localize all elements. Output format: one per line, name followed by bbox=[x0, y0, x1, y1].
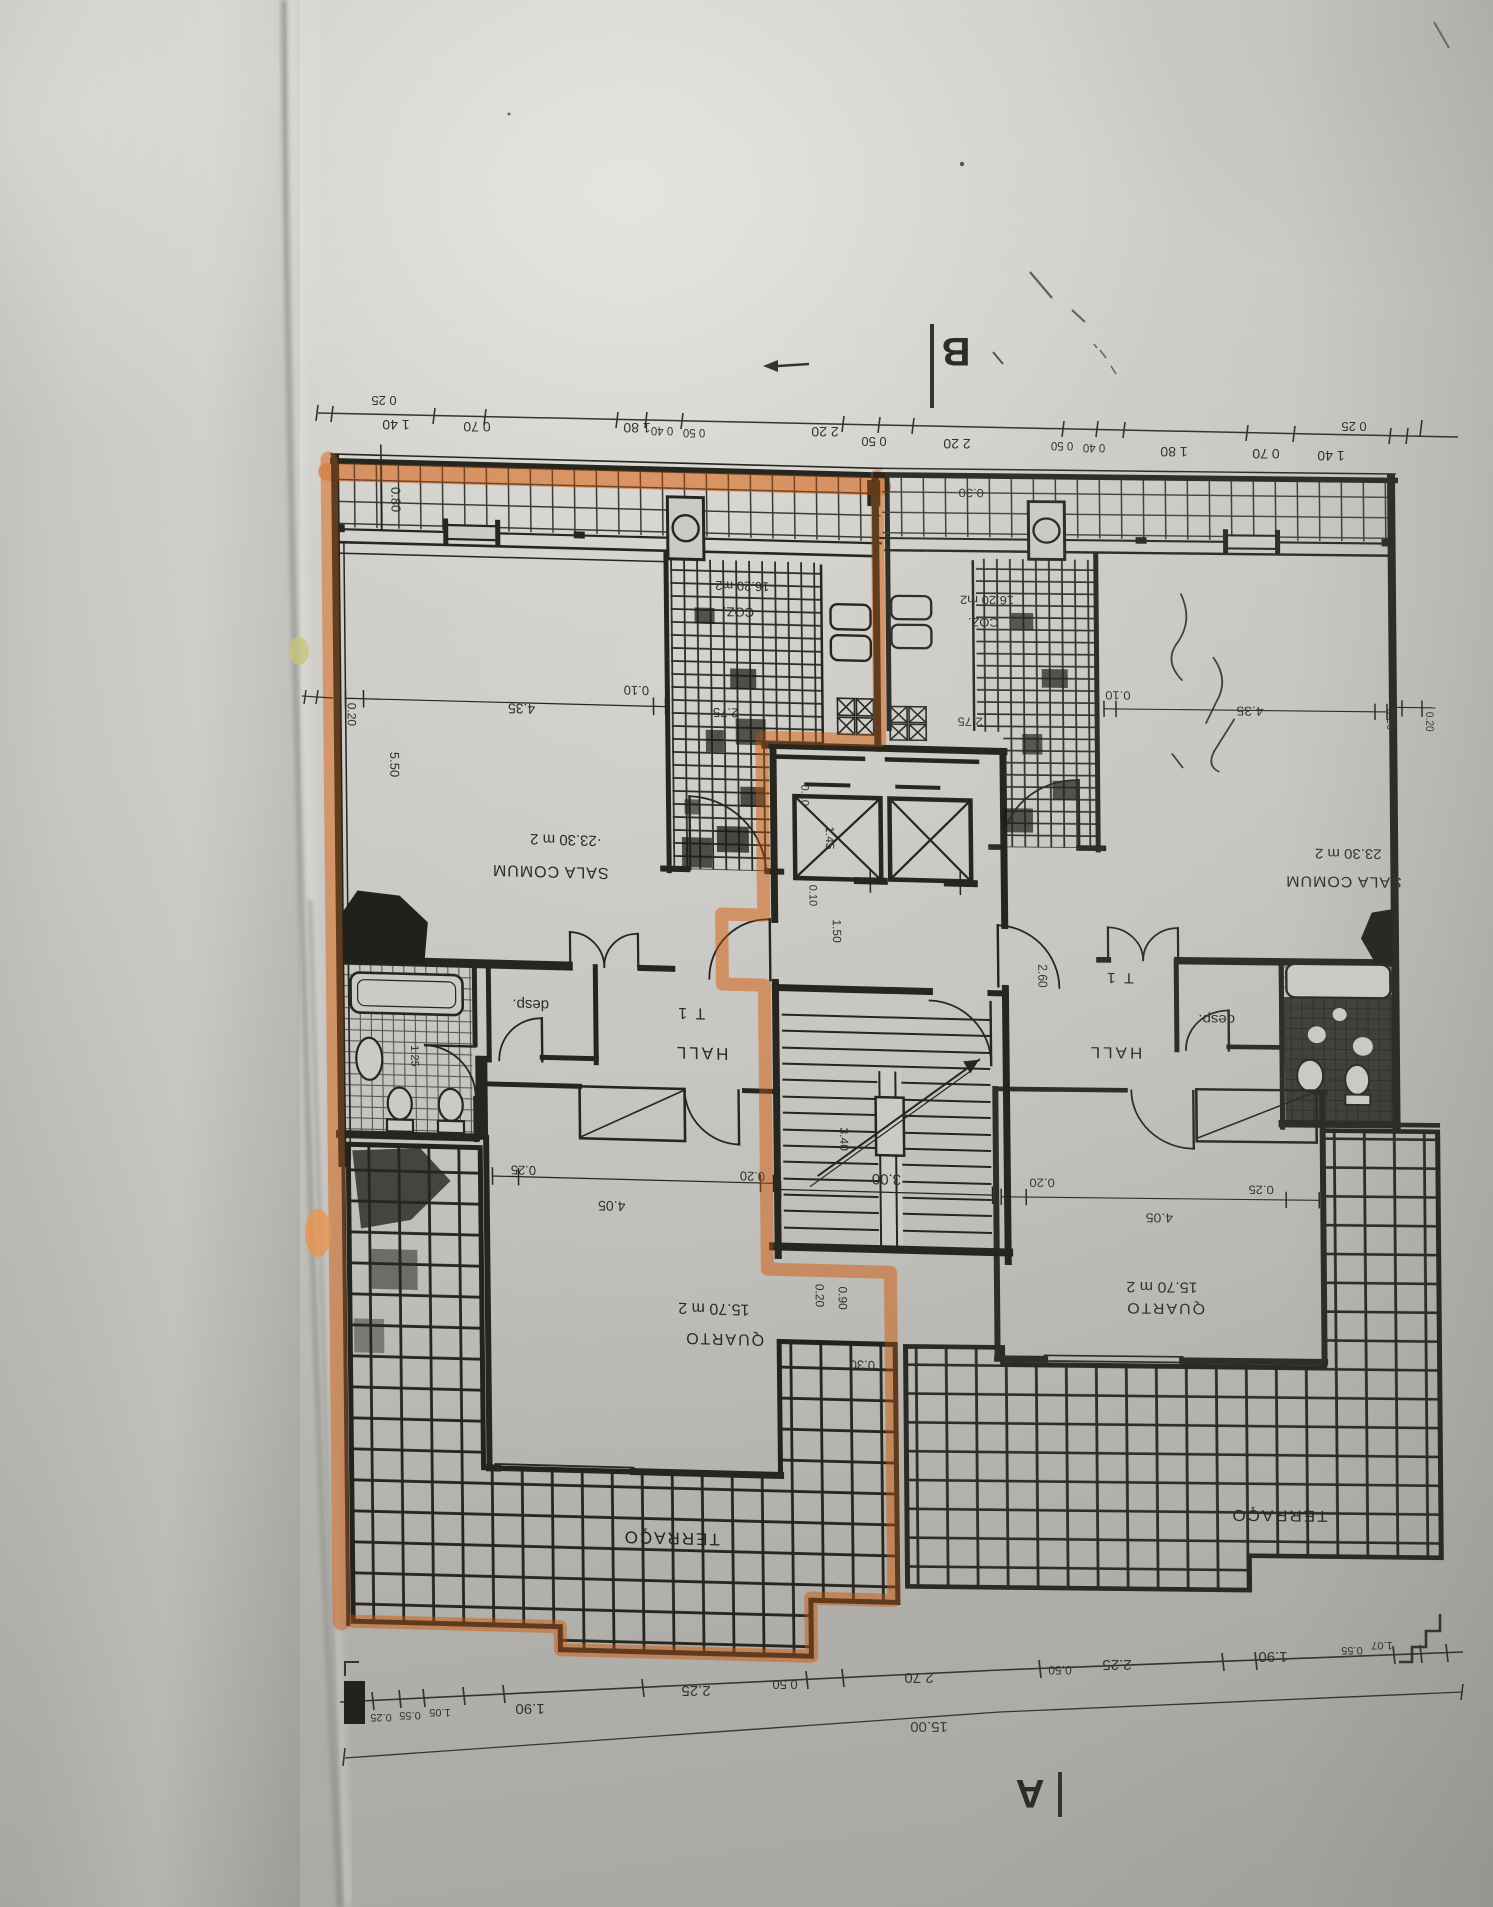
svg-text:desp.: desp. bbox=[1198, 1011, 1235, 1027]
svg-text:0 50: 0 50 bbox=[1051, 439, 1073, 451]
svg-text:0.25: 0.25 bbox=[1248, 1183, 1273, 1197]
svg-text:1.25: 1.25 bbox=[408, 1045, 420, 1067]
svg-text:0 70: 0 70 bbox=[1252, 446, 1279, 462]
svg-text:COZ.: COZ. bbox=[968, 615, 999, 629]
svg-text:0.90: 0.90 bbox=[836, 1286, 850, 1310]
svg-text:0.30: 0.30 bbox=[850, 1357, 875, 1373]
svg-text:TERRAÇO: TERRAÇO bbox=[623, 1527, 720, 1549]
svg-text:2.25: 2.25 bbox=[681, 1682, 710, 1699]
svg-text:0.50: 0.50 bbox=[772, 1677, 797, 1692]
svg-text:0.20: 0.20 bbox=[1029, 1176, 1054, 1190]
svg-text:0 40: 0 40 bbox=[1083, 441, 1105, 453]
svg-text:0 50: 0 50 bbox=[683, 426, 705, 438]
svg-text:0.10: 0.10 bbox=[624, 683, 649, 699]
svg-text:0.10: 0.10 bbox=[1105, 688, 1130, 702]
svg-text:1 80: 1 80 bbox=[623, 420, 650, 436]
svg-text:3.00: 3.00 bbox=[872, 1170, 901, 1188]
svg-text:4.35: 4.35 bbox=[1236, 704, 1263, 719]
svg-text:0.25: 0.25 bbox=[370, 1711, 391, 1723]
svg-text:0.50: 0.50 bbox=[1048, 1663, 1072, 1677]
svg-text:0 25: 0 25 bbox=[371, 393, 396, 408]
svg-text:0.80: 0.80 bbox=[388, 487, 403, 513]
svg-text:0 25: 0 25 bbox=[1341, 419, 1366, 434]
svg-text:0.10: 0.10 bbox=[806, 885, 818, 907]
svg-text:T 1: T 1 bbox=[1105, 969, 1134, 986]
svg-text:desp.: desp. bbox=[512, 996, 549, 1014]
svg-text:15.70 m 2: 15.70 m 2 bbox=[1126, 1278, 1197, 1295]
svg-text:1 80: 1 80 bbox=[1160, 444, 1187, 460]
svg-text:1.45: 1.45 bbox=[823, 826, 837, 850]
svg-text:1.90: 1.90 bbox=[515, 1700, 544, 1717]
svg-text:1 40: 1 40 bbox=[382, 417, 409, 433]
svg-text:0 40: 0 40 bbox=[651, 424, 673, 436]
svg-text:0.10: 0.10 bbox=[798, 784, 810, 806]
svg-text:15.70 m 2: 15.70 m 2 bbox=[678, 1299, 749, 1318]
svg-text:1.05: 1.05 bbox=[429, 1706, 450, 1718]
svg-text:2.60: 2.60 bbox=[1035, 964, 1050, 988]
svg-text:2 20: 2 20 bbox=[811, 424, 838, 440]
svg-text:3.40: 3.40 bbox=[837, 1127, 851, 1151]
svg-text:4.35: 4.35 bbox=[508, 701, 536, 718]
svg-text:1.07: 1.07 bbox=[1371, 1639, 1392, 1651]
svg-text:4.05: 4.05 bbox=[1146, 1210, 1173, 1225]
svg-text:0.30: 0.30 bbox=[958, 486, 983, 500]
svg-text:0 50: 0 50 bbox=[861, 434, 886, 449]
svg-text:16.20 m2: 16.20 m2 bbox=[960, 593, 1014, 607]
svg-text:5.50: 5.50 bbox=[387, 752, 402, 778]
svg-text:4.05: 4.05 bbox=[598, 1198, 626, 1215]
svg-text:0.20: 0.20 bbox=[345, 703, 359, 727]
svg-text:0.20: 0.20 bbox=[1384, 708, 1397, 730]
svg-text:QUARTO: QUARTO bbox=[684, 1329, 764, 1348]
svg-text:SALA COMUM: SALA COMUM bbox=[1285, 872, 1402, 890]
svg-text:1.90: 1.90 bbox=[1258, 1648, 1287, 1665]
svg-text:2.75: 2.75 bbox=[713, 705, 738, 721]
svg-text:COZ.: COZ. bbox=[723, 604, 754, 620]
svg-text:TERRAÇO: TERRAÇO bbox=[1230, 1506, 1327, 1524]
svg-text:0.20: 0.20 bbox=[1423, 712, 1436, 732]
svg-text:2 70: 2 70 bbox=[904, 1669, 933, 1686]
svg-text:B: B bbox=[942, 329, 971, 373]
svg-text:A: A bbox=[1016, 1771, 1045, 1815]
svg-text:15.00: 15.00 bbox=[910, 1718, 948, 1735]
svg-text:23.30 m 2: 23.30 m 2 bbox=[1315, 845, 1382, 861]
svg-text:2.25: 2.25 bbox=[1102, 1656, 1131, 1673]
svg-text:QUARTO: QUARTO bbox=[1125, 1299, 1205, 1316]
svg-text:1.50: 1.50 bbox=[830, 919, 844, 943]
svg-text:2 20: 2 20 bbox=[943, 436, 970, 452]
svg-text:16.20 m2: 16.20 m2 bbox=[715, 578, 769, 594]
svg-text:0.20: 0.20 bbox=[813, 1284, 827, 1308]
svg-text:1 40: 1 40 bbox=[1317, 448, 1344, 464]
svg-text:0.55: 0.55 bbox=[399, 1709, 420, 1721]
svg-text:0.55: 0.55 bbox=[1341, 1644, 1362, 1656]
svg-text:2.75: 2.75 bbox=[957, 715, 982, 729]
svg-text:·23.30 m 2: ·23.30 m 2 bbox=[530, 830, 602, 849]
svg-text:HALL: HALL bbox=[674, 1043, 729, 1063]
svg-text:0 70: 0 70 bbox=[463, 419, 490, 435]
svg-text:SALA COMUM: SALA COMUM bbox=[492, 861, 609, 881]
svg-text:0.25: 0.25 bbox=[511, 1162, 536, 1178]
svg-text:T 1: T 1 bbox=[676, 1004, 705, 1022]
svg-text:HALL: HALL bbox=[1088, 1043, 1143, 1061]
